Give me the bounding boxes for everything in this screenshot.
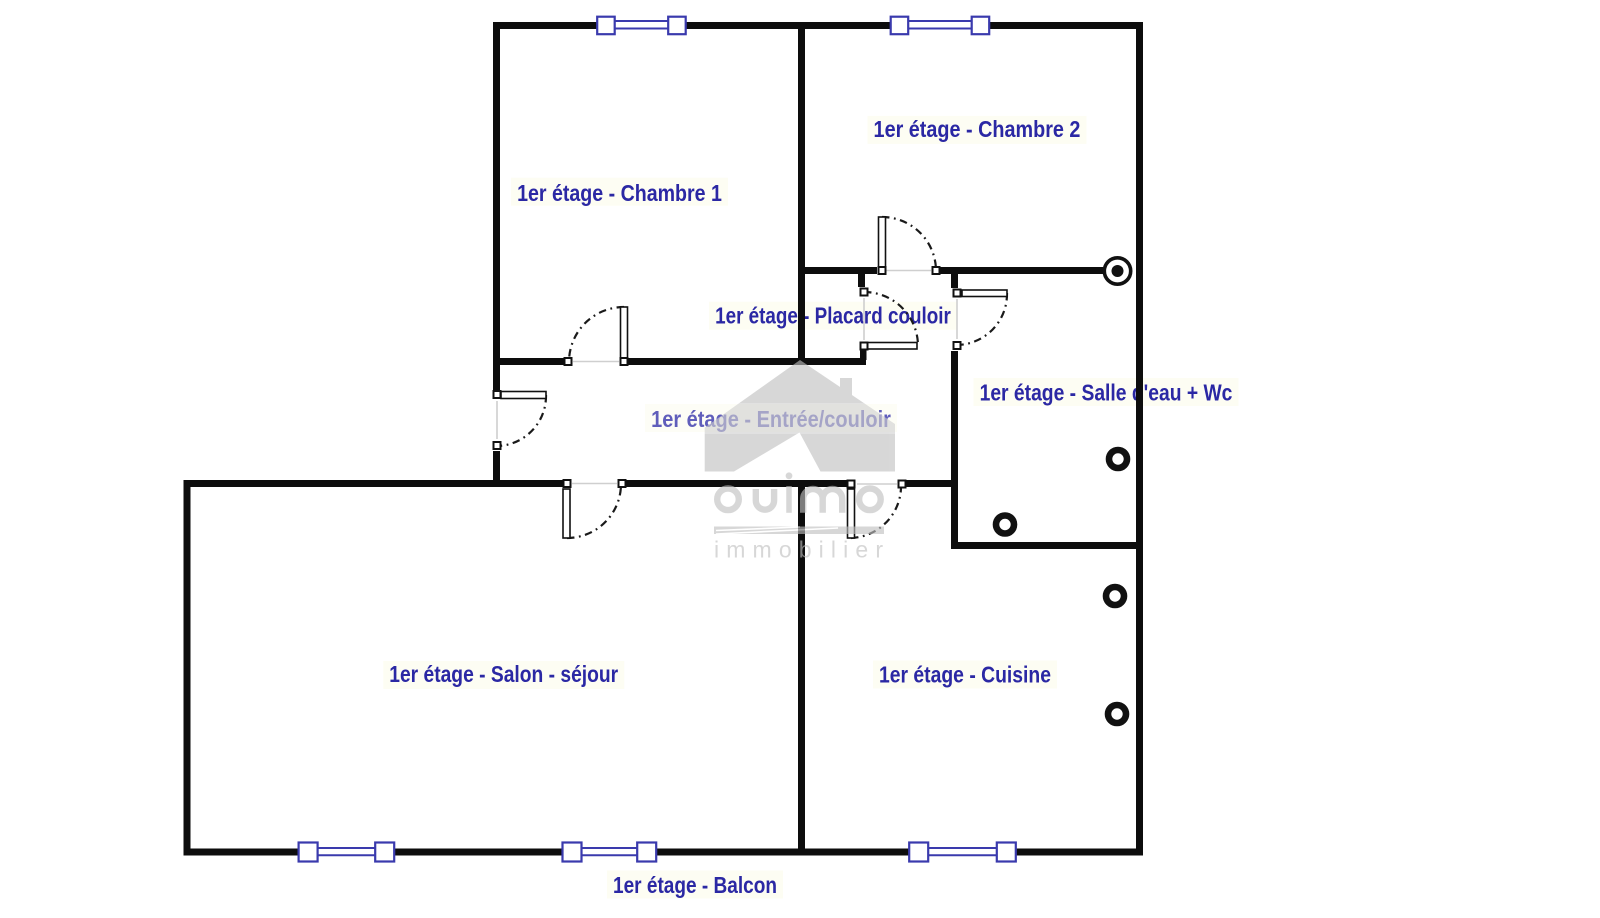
- svg-text:1er étage - Chambre 2: 1er étage - Chambre 2: [874, 117, 1081, 143]
- svg-text:immobilier: immobilier: [714, 537, 883, 563]
- svg-text:1er étage - Balcon: 1er étage - Balcon: [613, 873, 777, 898]
- svg-text:1er étage - Placard couloir: 1er étage - Placard couloir: [715, 304, 951, 329]
- svg-text:1er étage - Salle d'eau + Wc: 1er étage - Salle d'eau + Wc: [980, 381, 1233, 406]
- svg-text:1er étage - Salon - séjour: 1er étage - Salon - séjour: [389, 662, 618, 687]
- svg-text:1er étage - Cuisine: 1er étage - Cuisine: [879, 662, 1051, 688]
- svg-text:1er étage - Chambre 1: 1er étage - Chambre 1: [517, 181, 722, 207]
